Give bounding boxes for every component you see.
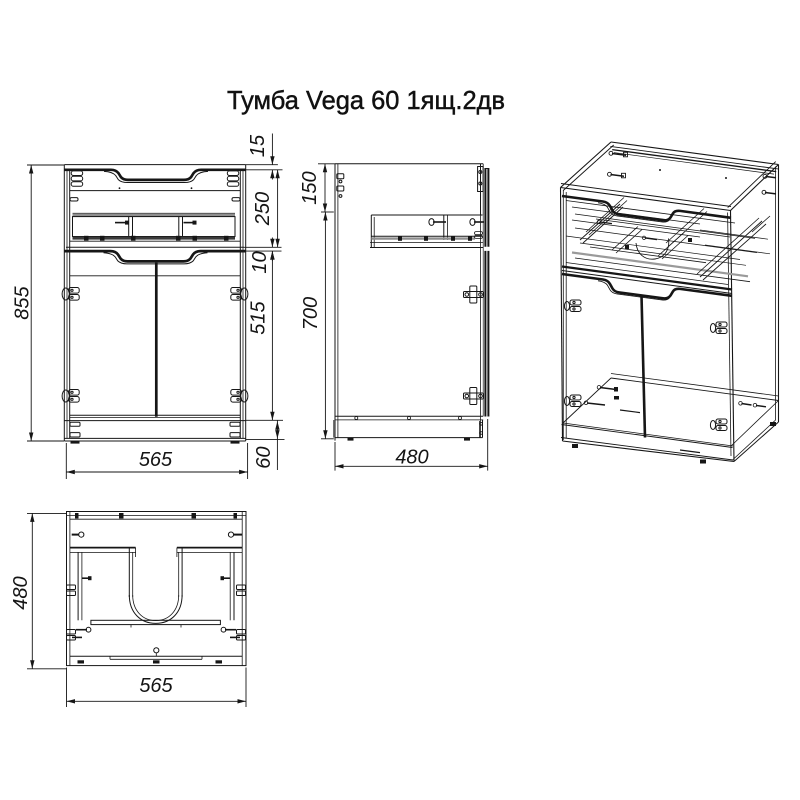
svg-text:855: 855 <box>12 285 34 319</box>
svg-text:15: 15 <box>247 134 269 157</box>
svg-text:480: 480 <box>10 576 32 609</box>
svg-text:480: 480 <box>395 447 428 469</box>
svg-text:10: 10 <box>249 251 271 273</box>
svg-text:565: 565 <box>139 675 173 697</box>
svg-text:565: 565 <box>139 449 173 471</box>
svg-text:700: 700 <box>300 297 322 330</box>
svg-text:515: 515 <box>248 300 270 334</box>
svg-text:Тумба Vega 60 1ящ.2дв: Тумба Vega 60 1ящ.2дв <box>227 85 505 115</box>
svg-text:250: 250 <box>252 192 274 226</box>
svg-text:60: 60 <box>253 446 275 468</box>
svg-text:150: 150 <box>299 171 321 204</box>
